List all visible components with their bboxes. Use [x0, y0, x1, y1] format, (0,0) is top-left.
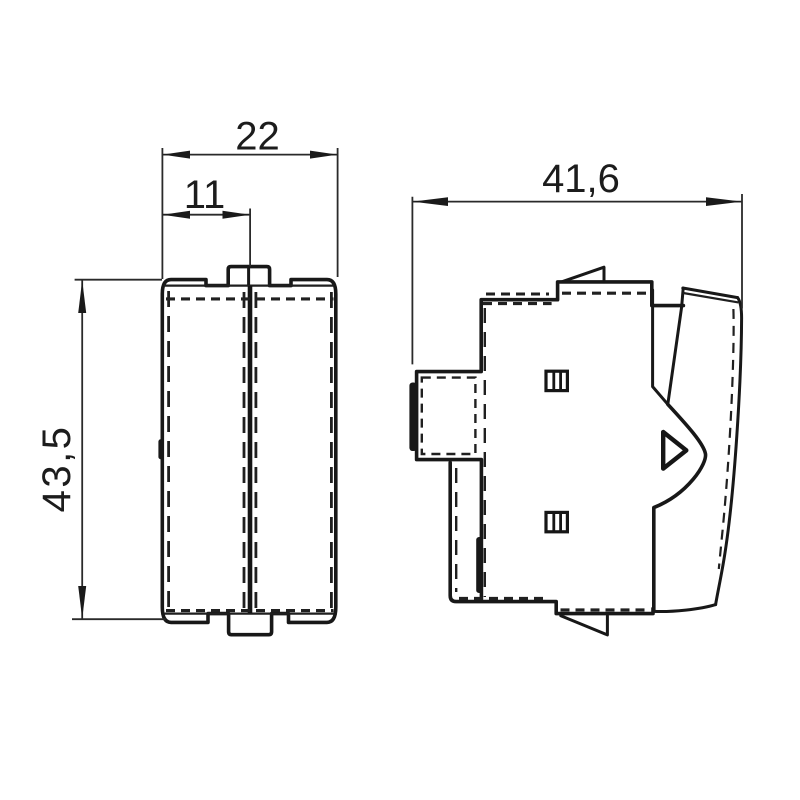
svg-text:22: 22	[235, 115, 280, 159]
svg-text:41,6: 41,6	[542, 157, 620, 201]
svg-text:11: 11	[184, 173, 226, 217]
svg-text:43,5: 43,5	[35, 425, 79, 513]
